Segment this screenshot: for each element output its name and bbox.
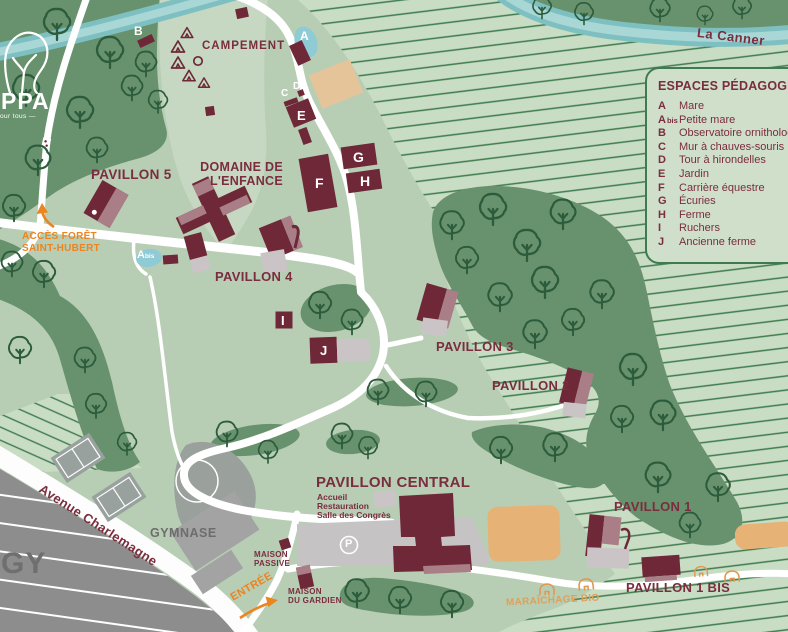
label-central-services: Accueil Restauration Salle des Congrès [317, 493, 391, 521]
building-petite-mare-shed [163, 254, 179, 264]
logo-tagline: our tous — [0, 114, 36, 121]
label-pavillon-1bis: PAVILLON 1 BIS [626, 581, 730, 594]
marker-petite-mare-abis: Abis [137, 250, 154, 261]
marker-parking-p: P [345, 539, 352, 550]
building-pavillon-1bis [641, 555, 681, 583]
legend-item: FCarrière équestre [658, 182, 788, 196]
legend-item: AMare [658, 100, 788, 114]
marker-ruchers-i: I [281, 314, 285, 327]
legend-item: HFerme [658, 209, 788, 223]
label-pavillon-5: PAVILLON 5 [91, 168, 172, 182]
logo-brand: PPA [1, 90, 50, 113]
legend-item: DTour à hirondelles [658, 154, 788, 168]
marker-ecuries-g: G [353, 150, 364, 164]
label-gymnase: GYMNASE [150, 527, 217, 540]
marker-ferme-h: H [360, 174, 370, 188]
label-maison-passive: MAISON PASSIVE [254, 551, 290, 569]
marker-carriere-f: F [315, 176, 324, 190]
legend-espaces-pedagogiques: ESPACES PÉDAGOGIQUES AMare AbisPetite ma… [645, 67, 788, 264]
label-pavillon-1: PAVILLON 1 [614, 500, 692, 513]
marker-mur-c: C [281, 89, 288, 99]
building-campement-south [205, 106, 215, 116]
marker-observatoire-b: B [134, 25, 143, 37]
label-pavillon-3: PAVILLON 3 [436, 340, 514, 353]
legend-item: IRuchers [658, 222, 788, 236]
label-pavillon-central: PAVILLON CENTRAL [316, 475, 470, 490]
label-maison-gardien: MAISON DU GARDIEN [288, 588, 342, 606]
legend-item: JAncienne ferme [658, 236, 788, 250]
legend-title: ESPACES PÉDAGOGIQUES [658, 79, 788, 93]
legend-item: CMur à chauves-souris [658, 141, 788, 155]
legend-item: BObservatoire ornithologique [658, 127, 788, 141]
marker-jardin-e: E [297, 109, 306, 122]
label-pavillon-4: PAVILLON 4 [215, 270, 293, 283]
legend-item: AbisPetite mare [658, 114, 788, 128]
marker-ancienne-ferme-j: J [320, 344, 327, 357]
label-acces-foret: ACCÈS FORÊT SAINT-HUBERT [22, 231, 94, 254]
label-pavillon-2: PAVILLON 2 [492, 379, 570, 392]
building-ancienne-ferme-j [310, 336, 371, 364]
legend-item: GÉcuries [658, 195, 788, 209]
label-campement: CAMPEMENT [202, 41, 285, 53]
label-domaine-enfance: DOMAINE DE L'ENFANCE [192, 160, 283, 188]
site-map: ESPACES PÉDAGOGIQUES AMare AbisPetite ma… [0, 0, 788, 632]
legend-item: EJardin [658, 168, 788, 182]
marker-mare-a: A [300, 30, 309, 42]
marker-tour-d: D [293, 82, 300, 92]
label-city-fragment: GY [1, 549, 46, 579]
